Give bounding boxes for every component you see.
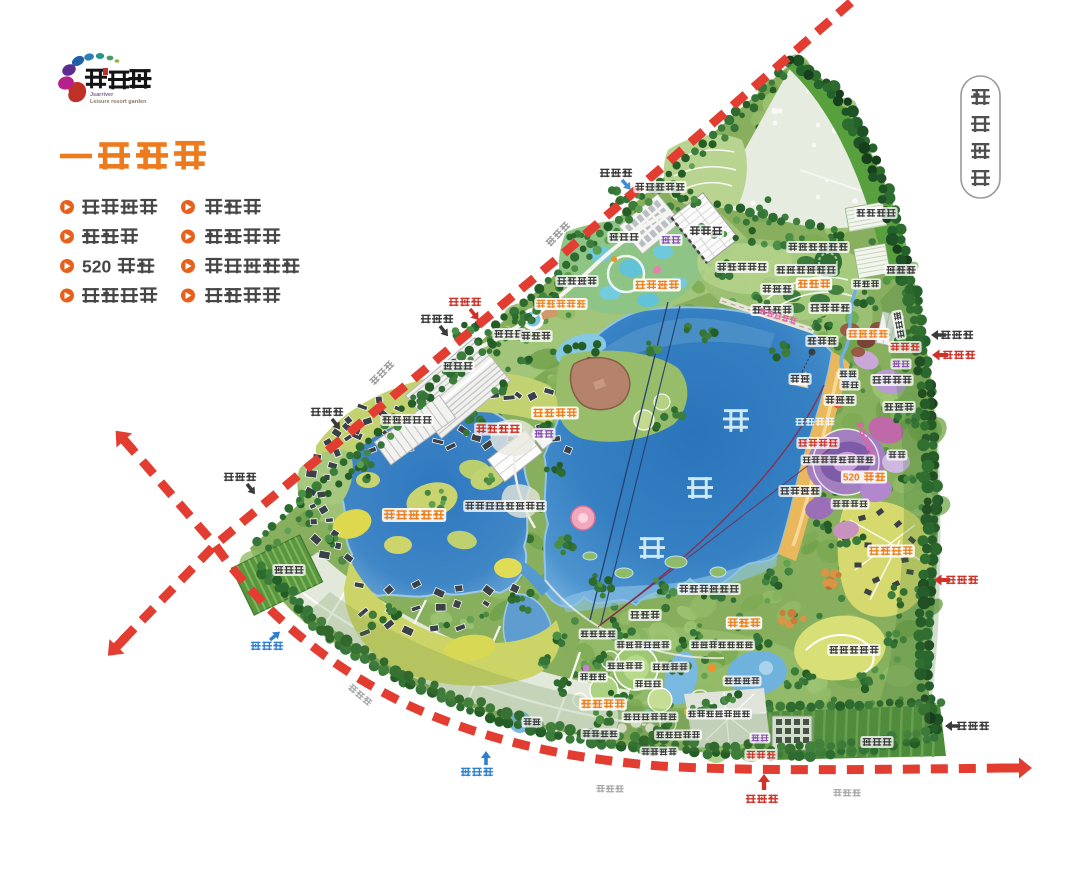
svg-text:520: 520: [843, 473, 860, 484]
svg-text:Leisure resort garden: Leisure resort garden: [90, 99, 147, 105]
svg-text:520: 520: [82, 256, 111, 276]
svg-text:Jsarriver: Jsarriver: [90, 92, 114, 98]
